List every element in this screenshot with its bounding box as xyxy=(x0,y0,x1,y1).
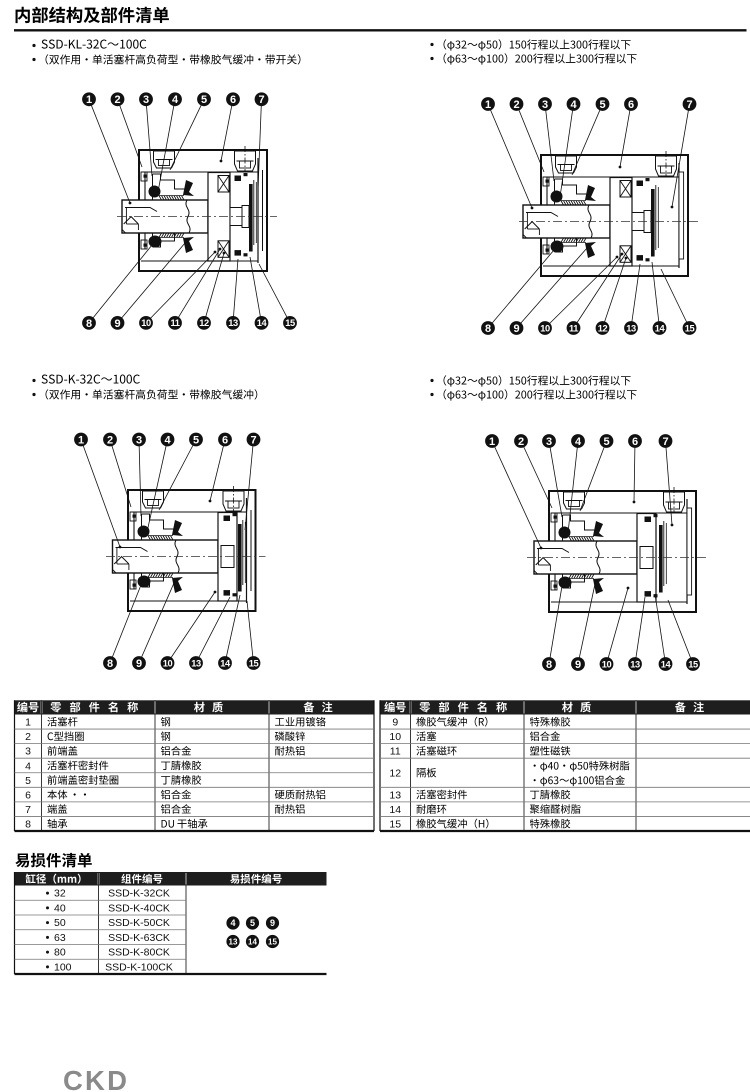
svg-text:14: 14 xyxy=(248,937,257,946)
svg-text:5: 5 xyxy=(599,99,605,111)
svg-text:5: 5 xyxy=(25,775,31,787)
svg-text:13: 13 xyxy=(389,789,401,801)
svg-text:2: 2 xyxy=(107,434,113,446)
svg-text:SSD-K-32CK: SSD-K-32CK xyxy=(108,888,170,900)
svg-text:8: 8 xyxy=(86,318,92,330)
svg-text:10: 10 xyxy=(163,658,173,668)
svg-text:11: 11 xyxy=(390,746,401,758)
svg-text:1: 1 xyxy=(78,434,84,446)
svg-text:4: 4 xyxy=(570,99,577,111)
svg-text:7: 7 xyxy=(686,99,692,111)
svg-text:15: 15 xyxy=(685,323,695,333)
svg-text:9: 9 xyxy=(136,658,142,670)
svg-text:SSD-K-63CK: SSD-K-63CK xyxy=(108,932,170,944)
svg-text:8: 8 xyxy=(546,659,552,671)
svg-text:4: 4 xyxy=(172,94,179,106)
svg-text:2: 2 xyxy=(114,94,120,106)
svg-text:9: 9 xyxy=(270,918,275,928)
svg-text:6: 6 xyxy=(628,99,634,111)
svg-text:3: 3 xyxy=(143,94,149,106)
svg-text:6: 6 xyxy=(632,436,638,448)
svg-text:1: 1 xyxy=(25,717,31,729)
svg-text:6: 6 xyxy=(230,94,236,106)
svg-text:40: 40 xyxy=(54,902,66,914)
svg-text:2: 2 xyxy=(513,99,519,111)
svg-text:9: 9 xyxy=(575,659,581,671)
svg-text:7: 7 xyxy=(662,436,668,448)
svg-text:4: 4 xyxy=(230,918,235,928)
svg-text:63: 63 xyxy=(54,932,66,944)
svg-text:14: 14 xyxy=(389,804,401,816)
svg-text:14: 14 xyxy=(257,318,268,328)
svg-text:9: 9 xyxy=(513,323,519,335)
svg-text:3: 3 xyxy=(542,99,548,111)
svg-text:4: 4 xyxy=(575,436,582,448)
svg-text:13: 13 xyxy=(626,323,636,333)
svg-text:12: 12 xyxy=(389,768,401,780)
svg-text:SSD-K-50CK: SSD-K-50CK xyxy=(108,917,170,929)
svg-text:1: 1 xyxy=(489,436,495,448)
svg-text:12: 12 xyxy=(598,323,608,333)
svg-text:11: 11 xyxy=(170,318,179,328)
svg-text:9: 9 xyxy=(392,717,398,729)
svg-text:14: 14 xyxy=(655,323,666,333)
svg-text:7: 7 xyxy=(250,434,256,446)
svg-text:10: 10 xyxy=(602,659,612,669)
svg-text:5: 5 xyxy=(603,436,609,448)
svg-text:8: 8 xyxy=(107,658,113,670)
svg-text:1: 1 xyxy=(485,99,491,111)
svg-text:15: 15 xyxy=(389,819,401,831)
svg-text:4: 4 xyxy=(25,760,31,772)
svg-text:15: 15 xyxy=(268,937,277,946)
svg-text:13: 13 xyxy=(228,318,238,328)
svg-text:100: 100 xyxy=(54,961,72,973)
svg-text:13: 13 xyxy=(630,659,640,669)
svg-text:6: 6 xyxy=(25,789,31,801)
svg-text:3: 3 xyxy=(136,434,142,446)
svg-text:2: 2 xyxy=(518,436,524,448)
svg-text:7: 7 xyxy=(258,94,264,106)
svg-text:13: 13 xyxy=(191,658,201,668)
svg-text:8: 8 xyxy=(25,819,31,831)
svg-text:13: 13 xyxy=(229,937,238,946)
svg-text:15: 15 xyxy=(249,658,259,668)
svg-text:2: 2 xyxy=(25,731,31,743)
svg-text:15: 15 xyxy=(285,318,295,328)
svg-text:14: 14 xyxy=(661,659,672,669)
svg-text:4: 4 xyxy=(164,434,171,446)
svg-text:5: 5 xyxy=(250,918,255,928)
svg-text:14: 14 xyxy=(220,658,231,668)
svg-text:6: 6 xyxy=(222,434,228,446)
svg-text:7: 7 xyxy=(25,804,31,816)
svg-text:SSD-K-100CK: SSD-K-100CK xyxy=(105,961,173,973)
svg-text:5: 5 xyxy=(193,434,199,446)
svg-text:5: 5 xyxy=(201,94,207,106)
svg-text:8: 8 xyxy=(485,323,491,335)
svg-text:SSD-K-40CK: SSD-K-40CK xyxy=(108,902,170,914)
svg-text:32: 32 xyxy=(54,888,66,900)
svg-text:12: 12 xyxy=(199,318,209,328)
svg-text:SSD-K-80CK: SSD-K-80CK xyxy=(108,947,170,959)
svg-text:50: 50 xyxy=(54,917,66,929)
svg-text:10: 10 xyxy=(540,323,550,333)
svg-text:3: 3 xyxy=(546,436,552,448)
svg-text:15: 15 xyxy=(688,659,698,669)
svg-text:11: 11 xyxy=(569,323,578,333)
svg-text:CKD: CKD xyxy=(63,1065,129,1092)
svg-text:3: 3 xyxy=(25,746,31,758)
svg-text:80: 80 xyxy=(54,947,66,959)
svg-text:9: 9 xyxy=(114,318,120,330)
svg-text:10: 10 xyxy=(141,318,151,328)
svg-text:10: 10 xyxy=(389,731,401,743)
svg-text:1: 1 xyxy=(86,94,92,106)
